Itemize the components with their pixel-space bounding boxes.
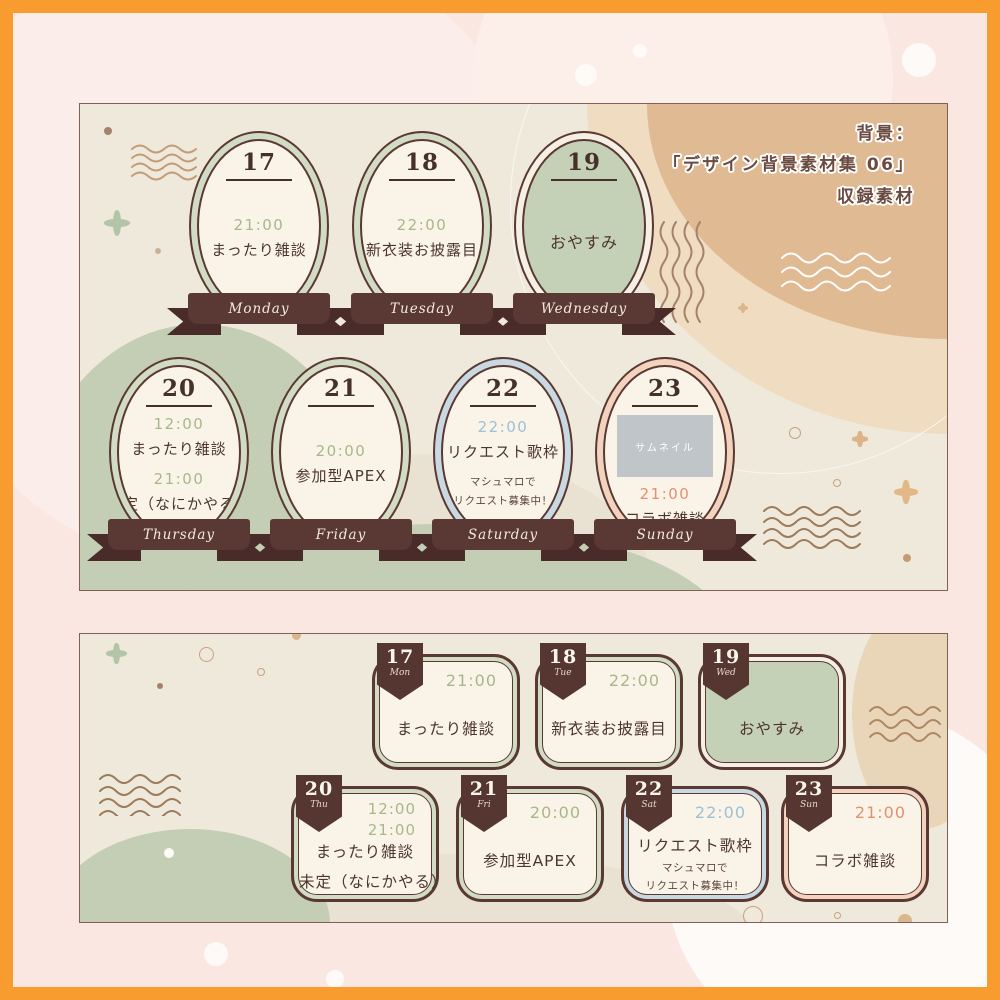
background-credit-text: 背景： 「デザイン背景素材集 06」 収録素材 <box>663 119 915 213</box>
card-content: 22:00 新衣装お披露目 <box>362 181 482 311</box>
card-content: サムネイル 21:00 コラボ雑談 <box>605 407 725 537</box>
white-dot <box>633 44 647 58</box>
title-label: 参加型APEX <box>464 849 596 871</box>
schedule-entry: おやすみ <box>550 224 618 253</box>
ribbon-band: Saturday <box>432 519 574 550</box>
ribbon-band: Sunday <box>594 519 736 550</box>
brown-dot <box>903 554 911 562</box>
note-text: マシュマロで リクエスト募集中！ <box>454 473 553 510</box>
note-line: マシュマロで <box>629 860 761 878</box>
title-label: 新衣装お披露目 <box>366 239 478 260</box>
schedule-entry: 21:00 未定（なにかやる） <box>117 470 241 514</box>
ribbon-band: Monday <box>188 293 330 324</box>
time-label: 22:00 <box>609 670 660 692</box>
oval-card-23-sunday: 23 サムネイル 21:00 コラボ雑談 Sunday <box>595 357 735 591</box>
time-label: 21:00 <box>640 485 691 503</box>
thumbnail-placeholder: サムネイル <box>617 415 713 477</box>
time-label: 12:00 <box>154 415 205 433</box>
badge-date: 19 <box>712 647 740 668</box>
white-dot <box>575 64 597 86</box>
date-number: 17 <box>226 150 292 181</box>
brown-dot <box>157 683 163 689</box>
title-label: まったり雑談 <box>211 239 306 260</box>
badge-day: Sun <box>800 800 818 810</box>
badge-day: Thu <box>310 800 328 810</box>
schedule-entry: 12:00 まったり雑談 <box>131 415 226 459</box>
rect-card-18-tue: 18 Tue 22:00 新衣装お披露目 <box>535 654 683 770</box>
circle-outline <box>257 668 265 676</box>
badge-date: 18 <box>549 647 577 668</box>
credit-line: 収録素材 <box>663 182 915 213</box>
circle-outline <box>789 427 801 439</box>
schedule-entry: 22:00 リクエスト歌枠 <box>447 418 559 462</box>
schedule-entry: 22:00 新衣装お披露目 <box>366 216 478 260</box>
tan-dot <box>155 248 161 254</box>
date-number: 22 <box>470 376 536 407</box>
title-label: 参加型APEX <box>295 465 386 486</box>
time-label: 22:00 <box>695 802 746 824</box>
time-line: 21:00 <box>368 820 416 841</box>
clover-icon <box>738 303 748 313</box>
oval-card-21-friday: 21 20:00 参加型APEX Friday <box>271 357 411 591</box>
day-ribbon: Monday <box>167 293 351 341</box>
badge-date: 20 <box>305 779 333 800</box>
date-number: 23 <box>632 376 698 407</box>
card-content: 22:00 リクエスト歌枠 マシュマロで リクエスト募集中！ <box>443 407 563 537</box>
schedule-entry: 20:00 参加型APEX <box>295 442 386 486</box>
badge-day: Tue <box>554 668 571 678</box>
clover-icon <box>894 480 918 504</box>
note-line: リクエスト募集中！ <box>454 492 553 510</box>
card-body: 18 22:00 新衣装お披露目 <box>360 139 484 313</box>
badge-date: 17 <box>386 647 414 668</box>
title-label: まったり雑談 <box>299 840 431 862</box>
date-number: 18 <box>389 150 455 181</box>
card-content: おやすみ <box>524 181 644 311</box>
title-label: 未定（なにかやる） <box>299 870 431 892</box>
wavy-lines-icon <box>98 774 182 816</box>
card-content: 20:00 参加型APEX <box>281 407 401 537</box>
circle-outline <box>743 906 763 923</box>
title-label: まったり雑談 <box>131 438 226 459</box>
card-body: 19 おやすみ <box>522 139 646 313</box>
oval-card-19-wednesday: 19 おやすみ Wednesday <box>514 131 654 371</box>
card-body: 21 20:00 参加型APEX <box>279 365 403 539</box>
circle-outline <box>833 479 841 487</box>
badge-day: Wed <box>716 668 736 678</box>
wavy-lines-icon <box>869 706 941 746</box>
badge-day: Sat <box>641 800 656 810</box>
oval-card-17-monday: 17 21:00 まったり雑談 Monday <box>189 131 329 371</box>
badge-date: 22 <box>635 779 663 800</box>
thumbnail-label: サムネイル <box>635 439 695 454</box>
title-label: おやすみ <box>550 229 618 253</box>
day-ribbon: Saturday <box>411 519 595 567</box>
wavy-lines-icon <box>762 506 862 550</box>
time-label: 12:00 21:00 <box>368 799 416 841</box>
day-label: Saturday <box>468 527 538 543</box>
badge-date: 23 <box>795 779 823 800</box>
white-dot <box>902 43 936 77</box>
note-line: リクエスト募集中！ <box>629 878 761 896</box>
title-label: 未定（なにかやる） <box>117 493 241 514</box>
card-content: 21:00 まったり雑談 <box>199 181 319 311</box>
credit-line: 背景： <box>663 119 915 150</box>
rect-card-17-mon: 17 Mon 21:00 まったり雑談 <box>372 654 520 770</box>
title-label: 新衣装お披露目 <box>543 717 675 739</box>
card-body: 22 22:00 リクエスト歌枠 マシュマロで リクエスト募集中！ <box>441 365 565 539</box>
title-label: おやすみ <box>706 717 838 739</box>
time-label: 21:00 <box>855 802 906 824</box>
day-ribbon: Friday <box>249 519 433 567</box>
card-content: 12:00 まったり雑談 21:00 未定（なにかやる） <box>119 407 239 537</box>
ribbon-band: Friday <box>270 519 412 550</box>
card-body: 20 12:00 まったり雑談 21:00 未定（なにかやる） <box>117 365 241 539</box>
ribbon-band: Tuesday <box>351 293 493 324</box>
tan-dot <box>292 633 301 640</box>
time-label: 21:00 <box>154 470 205 488</box>
card-body: 17 21:00 まったり雑談 <box>197 139 321 313</box>
rect-schedule-panel: 17 Mon 21:00 まったり雑談 18 Tue 22:00 新衣装お披露目… <box>79 633 948 923</box>
day-ribbon: Tuesday <box>330 293 514 341</box>
date-number: 21 <box>308 376 374 407</box>
circle-outline <box>834 912 841 919</box>
white-dot <box>164 848 174 858</box>
oval-card-22-saturday: 22 22:00 リクエスト歌枠 マシュマロで リクエスト募集中！ Saturd… <box>433 357 573 591</box>
ribbon-band: Wednesday <box>513 293 655 324</box>
badge-day: Mon <box>390 668 410 678</box>
date-number: 20 <box>146 376 212 407</box>
time-label: 21:00 <box>446 670 497 692</box>
time-label: 20:00 <box>316 442 367 460</box>
ribbon-band: Thursday <box>108 519 250 550</box>
orange-frame: 17 21:00 まったり雑談 Monday 18 22:00 <box>0 0 1000 1000</box>
title-label: リクエスト歌枠 <box>447 441 559 462</box>
day-label: Monday <box>229 301 290 317</box>
rect-card-23-sun: 23 Sun 21:00 コラボ雑談 <box>781 786 929 902</box>
title-label: リクエスト歌枠 <box>629 834 761 856</box>
note-line: マシュマロで <box>454 473 553 491</box>
oval-card-20-thursday: 20 12:00 まったり雑談 21:00 未定（なにかやる） Thursday <box>109 357 249 591</box>
clover-icon <box>106 643 127 664</box>
title-label: コラボ雑談 <box>789 849 921 871</box>
rect-card-22-sat: 22 Sat 22:00 リクエスト歌枠 マシュマロで リクエスト募集中！ <box>621 786 769 902</box>
white-wavy-lines-icon <box>780 252 894 292</box>
rect-card-21-fri: 21 Fri 20:00 参加型APEX <box>456 786 604 902</box>
title-label: まったり雑談 <box>380 717 512 739</box>
rect-card-20-thu: 20 Thu 12:00 21:00 まったり雑談 未定（なにかやる） <box>291 786 439 902</box>
day-label: Tuesday <box>390 301 454 317</box>
day-label: Wednesday <box>541 301 627 317</box>
day-label: Thursday <box>143 527 215 543</box>
rect-card-19-wed: 19 Wed おやすみ <box>698 654 846 770</box>
day-ribbon: Sunday <box>573 519 757 567</box>
brown-dot <box>104 127 112 135</box>
badge-date: 21 <box>470 779 498 800</box>
oval-card-18-tuesday: 18 22:00 新衣装お披露目 Tuesday <box>352 131 492 371</box>
date-number: 19 <box>551 150 617 181</box>
clover-icon <box>104 210 130 236</box>
day-label: Friday <box>316 527 366 543</box>
time-label: 21:00 <box>234 216 285 234</box>
clover-icon <box>852 431 868 447</box>
card-body: 23 サムネイル 21:00 コラボ雑談 <box>603 365 727 539</box>
badge-day: Fri <box>477 800 490 810</box>
time-label: 20:00 <box>530 802 581 824</box>
day-label: Sunday <box>637 527 694 543</box>
white-dot <box>326 970 344 988</box>
time-line: 12:00 <box>368 799 416 820</box>
tan-dot <box>898 914 912 923</box>
white-dot <box>204 942 228 966</box>
time-label: 22:00 <box>397 216 448 234</box>
time-label: 22:00 <box>478 418 529 436</box>
day-ribbon: Wednesday <box>492 293 676 341</box>
circle-outline <box>199 647 214 662</box>
credit-line: 「デザイン背景素材集 06」 <box>663 150 915 181</box>
day-ribbon: Thursday <box>87 519 271 567</box>
note-text: マシュマロで リクエスト募集中！ <box>629 860 761 896</box>
schedule-entry: 21:00 まったり雑談 <box>211 216 306 260</box>
